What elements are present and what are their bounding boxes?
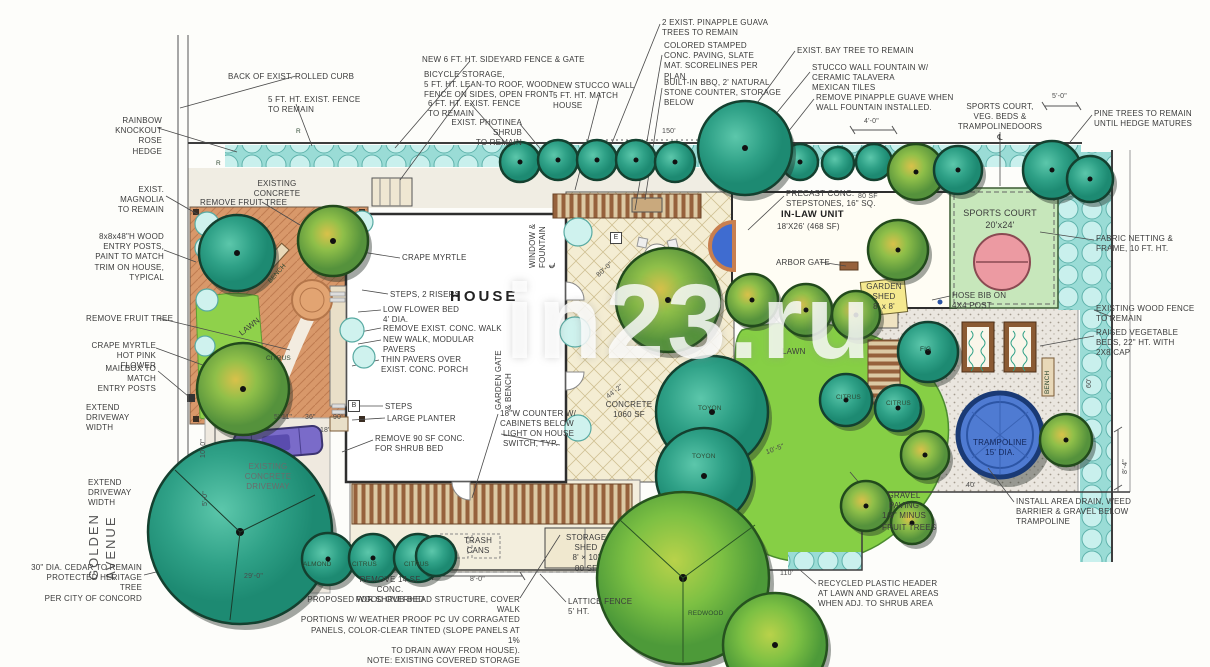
label-existing-driveway: EXISTING CONCRETE DRIVEWAY xyxy=(244,462,292,493)
label-concrete-1060: CONCRETE 1060 SF xyxy=(604,400,654,420)
label-extend-driveway-2: EXTEND DRIVEWAY WIDTH xyxy=(88,478,130,509)
label-citrus-2: CITRUS xyxy=(352,561,377,569)
dim-4-0: 4'-0" xyxy=(864,118,879,127)
label-fence-5ft: 5 FT. HT. EXIST. FENCE TO REMAIN xyxy=(268,95,360,115)
label-toyon-1: TOYON xyxy=(698,405,722,413)
label-remove-walk: REMOVE EXIST. CONC. WALK xyxy=(383,324,502,334)
label-pineapple-guava: 2 EXIST. PINAPPLE GUAVA TREES TO REMAIN xyxy=(662,18,768,38)
label-bench-vertical: BENCH xyxy=(1044,371,1052,394)
label-court-centerline: SPORTS COURT, VEG. BEDS & TRAMPOLINEDOOR… xyxy=(955,102,1045,143)
label-cedar: 30" DIA. CEDAR TO REMAIN PROTECTED HERIT… xyxy=(26,563,142,604)
bicycle-storage xyxy=(372,178,412,206)
dim-150: 150' xyxy=(662,128,676,137)
pergola-top xyxy=(553,194,701,218)
circle-paver xyxy=(292,280,332,320)
label-fence-6ft: 6 FT. HT. EXIST. FENCE TO REMAIN xyxy=(428,99,520,119)
dim-18: 18' xyxy=(320,427,329,436)
label-sports-court: SPORTS COURT 20'x24' xyxy=(962,208,1038,231)
label-wood-fence: EXISTING WOOD FENCE TO REMAIN xyxy=(1096,304,1194,324)
watermark: in23.ru xyxy=(505,262,874,383)
b-marker: B xyxy=(348,400,360,412)
label-crape-myrtle: CRAPE MYRTLE xyxy=(402,253,467,263)
label-photinea: EXIST. PHOTINEA SHRUB TO REMAIN xyxy=(438,118,522,149)
label-magnolia: EXIST. MAGNOLIA TO REMAIN xyxy=(110,185,164,216)
dim-29-0: 29'-0" xyxy=(244,573,263,582)
label-pine-trees: PINE TREES TO REMAIN UNTIL HEDGE MATURES xyxy=(1094,109,1192,129)
label-overhead-note: PROPOSED WOOD OVERHEAD STRUCTURE, COVER … xyxy=(300,595,520,667)
label-remove-14sf: REMOVE 14 SF CONC. FOR SHRUB BED xyxy=(350,575,430,606)
label-entry-posts: 8x8x48"H WOOD ENTRY POSTS, PAINT TO MATC… xyxy=(88,232,164,283)
label-thin-pavers: THIN PAVERS OVER EXIST. CONC. PORCH xyxy=(381,355,468,375)
label-citrus-1: CITRUS xyxy=(266,355,291,363)
dim-10-0: 10'-0" xyxy=(200,439,209,458)
label-trash-cans: TRASH CANS xyxy=(458,536,498,556)
label-sideyard-fence: NEW 6 FT. HT. SIDEYARD FENCE & GATE xyxy=(422,55,585,65)
label-fabric-netting: FABRIC NETTING & FRAME, 10 FT. HT. xyxy=(1096,234,1173,254)
label-stamped-concrete: COLORED STAMPED CONC. PAVING, SLATE MAT.… xyxy=(664,41,758,82)
dim-36: 36" xyxy=(305,414,316,423)
dim-8-0: 8'-0" xyxy=(470,576,485,585)
dim-60: 60' xyxy=(1086,378,1095,388)
label-redwood: REDWOOD xyxy=(688,610,723,618)
patio-chair xyxy=(637,237,648,248)
court-side-hedge xyxy=(1058,190,1082,310)
label-counter-18: 18"W COUNTER W/ CABINETS BELOW xyxy=(500,409,576,429)
steps xyxy=(332,404,345,408)
label-bay-tree: EXIST. BAY TREE TO REMAIN xyxy=(797,46,914,56)
label-area-drain: INSTALL AREA DRAIN, WEED BARRIER & GRAVE… xyxy=(1016,497,1131,528)
label-remove-guava: REMOVE PINAPPLE GUAVE WHEN WALL FOUNTAIN… xyxy=(816,93,954,113)
dim-40: 40' xyxy=(966,482,976,491)
dim-8-4: 8'-4" xyxy=(1122,459,1131,474)
label-stucco-wall: NEW STUCCO WALL 5 FT. HT. MATCH HOUSE xyxy=(553,81,634,112)
label-fig: FIG xyxy=(920,346,931,354)
entry-post xyxy=(193,416,199,422)
dim-90deg: 90° xyxy=(333,414,344,423)
label-wall-fountain: STUCCO WALL FOUNTAIN W/ CERAMIC TALAVERA… xyxy=(812,63,928,94)
landscape-plan: BACK OF EXIST. ROLLED CURB 5 FT. HT. EXI… xyxy=(0,0,1210,667)
label-remove-fruit-2: REMOVE FRUIT TREE xyxy=(86,314,173,324)
label-citrus-5: CITRUS xyxy=(886,400,911,408)
label-plastic-header: RECYCLED PLASTIC HEADER AT LAWN AND GRAV… xyxy=(818,579,939,610)
label-inlaw-size: 18'X26' (468 SF) xyxy=(777,222,840,232)
label-new-walk: NEW WALK, MODULAR PAVERS xyxy=(383,335,474,355)
label-rolled-curb: BACK OF EXIST. ROLLED CURB xyxy=(228,72,354,82)
label-almond: ALMOND xyxy=(303,561,331,569)
label-extend-driveway-1: EXTEND DRIVEWAY WIDTH xyxy=(86,403,128,434)
label-remove-90sf: REMOVE 90 SF CONC. FOR SHRUB BED xyxy=(375,434,465,454)
label-citrus-4: CITRUS xyxy=(836,394,861,402)
label-rose-hedge: RAINBOW KNOCKOUT ROSE HEDGE xyxy=(110,116,162,157)
label-light-switch: LIGHT ON HOUSE SWITCH, TYP. xyxy=(503,429,574,449)
label-storage-shed: STORAGE SHED 8' × 10' 80 SF xyxy=(566,533,606,574)
label-large-planter: LARGE PLANTER xyxy=(387,414,456,424)
label-veg-beds: RAISED VEGETABLE BEDS, 22" HT. WITH 2X8 … xyxy=(1096,328,1178,359)
label-citrus-3: CITRUS xyxy=(404,561,429,569)
label-trampoline: TRAMPOLINE 15' DIA. xyxy=(967,438,1033,458)
electrical-marker: E xyxy=(610,232,622,244)
label-hose-bib: HOSE BIB ON 4X4 POST xyxy=(952,291,1006,311)
label-lattice-fence: LATTICE FENCE 5' HT. xyxy=(568,597,632,617)
label-toyon-2: TOYON xyxy=(692,453,716,461)
label-bicycle-storage: BICYCLE STORAGE, 5 FT. HT. LEAN-TO ROOF,… xyxy=(424,70,554,101)
radius-marker-1: R xyxy=(296,128,301,136)
label-inlaw-unit: IN-LAW UNIT xyxy=(781,209,844,221)
hose-bib xyxy=(938,300,943,305)
label-flower-bed: LOW FLOWER BED 4' DIA. xyxy=(383,305,459,325)
label-existing-concrete: EXISTING CONCRETE xyxy=(253,179,301,199)
label-gravel: GRAVEL PAVING 1/4" MINUS xyxy=(872,491,936,522)
radius-marker-2: R xyxy=(216,160,221,168)
label-mailbox: MAILBOX TO MATCH ENTRY POSTS xyxy=(84,364,156,395)
dim-5-11: 5'-11" xyxy=(274,414,292,423)
dim-110: 110' xyxy=(780,570,793,579)
label-bbq: BUILT-IN BBQ, 2' NATURAL STONE COUNTER, … xyxy=(664,78,781,109)
label-fruit-trees: FRUIT TREES xyxy=(882,523,936,533)
bottom-hedge-strip xyxy=(788,552,862,570)
dim-5-0: 5'-0" xyxy=(1052,93,1067,102)
covered-walk-structure xyxy=(352,484,632,524)
dim-5-0-b: 5'-0" xyxy=(202,491,211,506)
label-80sf: 80 SF xyxy=(858,193,878,202)
label-remove-fruit-1: REMOVE FRUIT TREE xyxy=(200,198,287,208)
label-steps: STEPS xyxy=(385,402,412,412)
